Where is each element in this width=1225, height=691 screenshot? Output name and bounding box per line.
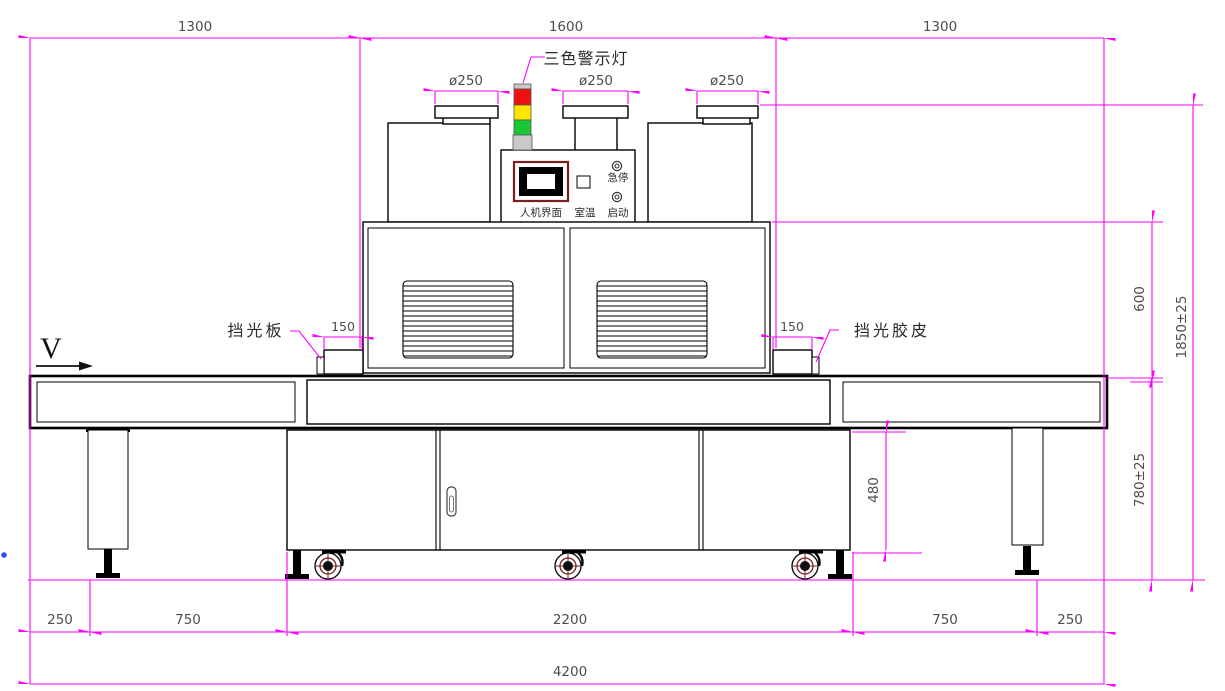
left-shield-leader	[290, 331, 321, 359]
right-shield-rubber	[812, 357, 819, 374]
lamp-green-segment	[514, 120, 531, 135]
dim-bottom-3: 2200	[553, 612, 587, 628]
warning-light-tower	[513, 84, 532, 150]
conveyor-band	[30, 376, 1107, 428]
uv-machine-front-elevation: 人机界面 室温 急停 启动	[0, 0, 1225, 691]
duct-diameter-dimensions: ø250 ø250 ø250	[435, 73, 758, 104]
caster-middle	[555, 550, 586, 579]
dim-bottom-5: 250	[1057, 612, 1083, 628]
cabinet-left-foot	[285, 550, 309, 579]
duct-cap-left	[435, 106, 498, 118]
conveyor-right-section	[843, 382, 1100, 422]
right-table-foot	[1015, 546, 1039, 575]
start-button[interactable]	[612, 192, 621, 201]
estop-button[interactable]	[612, 161, 621, 170]
dim-bottom-2: 750	[175, 612, 201, 628]
right-table-leg	[1012, 428, 1043, 545]
cabinet-door-handle-slot	[450, 496, 454, 512]
bottom-dimensions: 250 750 2200 750 250 4200	[30, 612, 1104, 684]
dim-top-right: 1300	[923, 19, 957, 35]
conveyor-middle-section	[307, 380, 830, 424]
dim-bottom-1: 250	[47, 612, 73, 628]
lamp-yellow-segment	[514, 105, 531, 120]
dim-cabinet-height: 480	[866, 477, 882, 503]
cad-drawing-page: 人机界面 室温 急停 启动	[0, 0, 1225, 691]
room-temp-label: 室温	[575, 206, 596, 219]
left-table-leg	[88, 430, 128, 549]
view-letter: V	[40, 332, 62, 365]
feet-and-casters	[96, 546, 1039, 579]
right-shield-ledge	[773, 350, 812, 374]
duct-cap-right	[697, 106, 758, 118]
left-lamp-housing	[388, 123, 490, 222]
left-vent-grille	[403, 281, 513, 358]
right-vent-grille	[597, 281, 707, 358]
top-dimensions: 1300 1600 1300	[30, 19, 1104, 38]
dim-top-middle: 1600	[549, 19, 583, 35]
start-label: 启动	[608, 206, 629, 219]
warning-light-label: 三色警示灯	[543, 49, 628, 68]
hmi-screen[interactable]	[527, 174, 555, 189]
duct-cap-middle	[563, 106, 628, 118]
dim-duct-middle: ø250	[579, 73, 613, 89]
cabinet-body	[287, 430, 850, 550]
estop-label: 急停	[608, 171, 629, 184]
caster-right	[792, 550, 823, 579]
dim-shield-left: 150	[331, 319, 355, 334]
machine-structure: 人机界面 室温 急停 启动	[1, 84, 1107, 579]
left-shield-ledge	[324, 350, 363, 374]
dim-top-left: 1300	[178, 19, 212, 35]
lamp-top-cap	[514, 84, 531, 89]
left-shield-plate	[317, 357, 324, 374]
dim-table-height: 780±25	[1132, 453, 1148, 507]
view-direction-marker: V	[36, 332, 93, 371]
left-shield-label: 挡光板	[227, 321, 284, 340]
dim-duct-right: ø250	[710, 73, 744, 89]
cabinet-right-foot	[828, 550, 852, 579]
hmi-label: 人机界面	[520, 206, 562, 219]
dim-total-height: 1850±25	[1174, 296, 1190, 359]
dim-overall-width: 4200	[553, 664, 587, 680]
direction-arrow-head	[79, 362, 93, 371]
oven-body	[363, 222, 770, 373]
dim-bottom-4: 750	[932, 612, 958, 628]
room-temp-indicator	[577, 176, 590, 188]
stray-blue-dot	[1, 552, 7, 558]
conveyor-left-section	[37, 382, 295, 422]
dim-shield-right: 150	[780, 319, 804, 334]
left-table-foot	[96, 549, 120, 578]
duct-neck-middle	[575, 115, 617, 151]
dim-duct-left: ø250	[449, 73, 483, 89]
right-lamp-housing	[648, 123, 752, 222]
lower-cabinet	[287, 430, 850, 550]
warning-light-leader	[523, 57, 545, 83]
lamp-base	[513, 135, 532, 150]
right-shield-label: 挡光胶皮	[854, 321, 930, 340]
dim-oven-height: 600	[1132, 286, 1148, 312]
caster-left	[315, 550, 346, 579]
lamp-red-segment	[514, 89, 531, 105]
control-panel: 人机界面 室温 急停 启动	[501, 150, 635, 223]
